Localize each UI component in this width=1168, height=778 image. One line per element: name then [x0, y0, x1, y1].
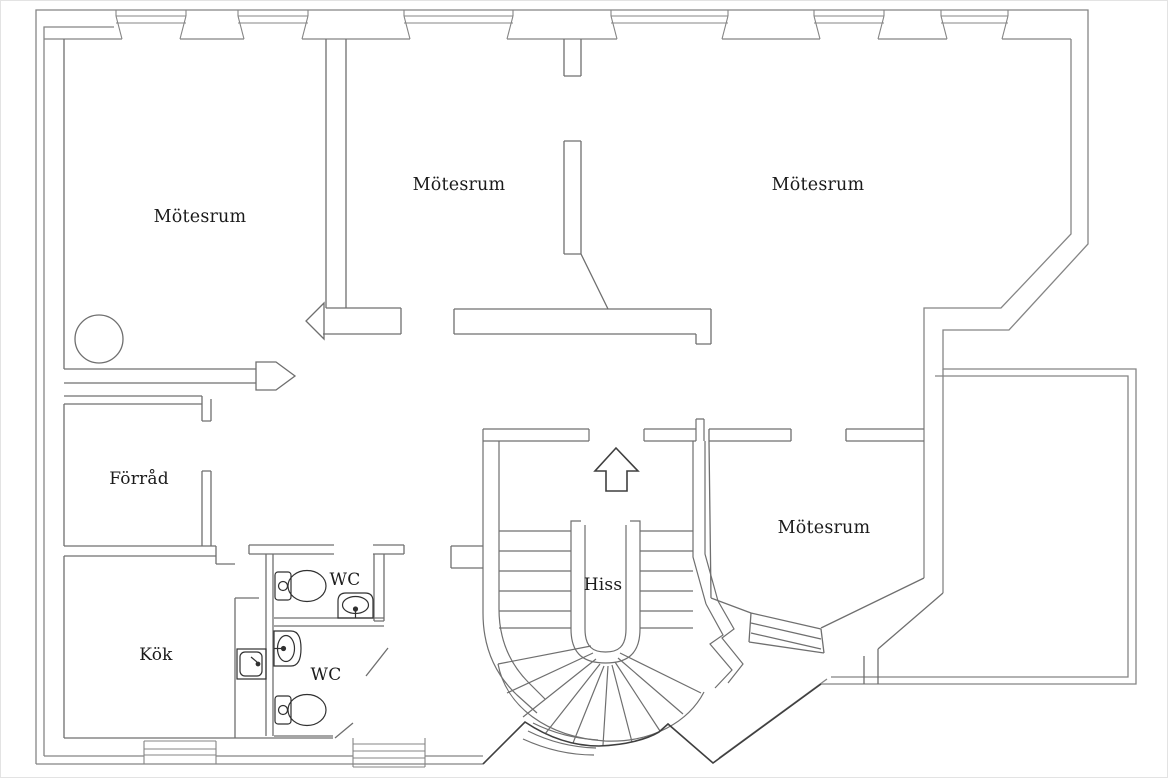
opening-arrow-right-icon — [256, 362, 295, 390]
room-label-wc-lower: WC — [311, 665, 342, 685]
window-icon — [814, 10, 884, 39]
entry-steps-icon — [353, 738, 425, 767]
room-labels: Mötesrum Mötesrum Mötesrum Mötesrum Förr… — [109, 175, 870, 685]
winder-outer-arc — [498, 664, 704, 741]
window-icon — [941, 10, 1008, 39]
winder-treads — [498, 646, 701, 745]
stair-treads-left — [499, 531, 571, 628]
elevator-shaft-bottom-inner — [585, 629, 626, 652]
landing-top-wall — [483, 419, 704, 441]
stair-left-wall-inner — [499, 441, 545, 699]
inner-face-right-chamfer — [924, 39, 1071, 578]
stair-right-wall — [693, 441, 718, 604]
washbasin-icon — [274, 631, 301, 666]
room-label-wc-upper: WC — [330, 570, 361, 590]
room-label-meeting-top-right: Mötesrum — [772, 175, 865, 195]
stair-treads-right — [640, 531, 693, 628]
room-label-storage: Förråd — [109, 469, 169, 489]
inner-face-left — [44, 27, 114, 756]
inner-face-bottom-right-bay — [831, 376, 1128, 677]
floor-plan-canvas: Mötesrum Mötesrum Mötesrum Mötesrum Förr… — [1, 1, 1168, 778]
window-icon — [238, 10, 308, 39]
washbasin-icon — [338, 593, 373, 618]
room-label-meeting-top-left: Mötesrum — [154, 207, 247, 227]
room-tm-left-wall — [323, 39, 401, 334]
floor-plan: Mötesrum Mötesrum Mötesrum Mötesrum Förr… — [0, 0, 1168, 778]
window-icon — [144, 741, 216, 764]
toilet-icon — [275, 571, 326, 602]
kitchen-counter — [235, 598, 259, 738]
outer-walls — [36, 10, 1136, 764]
entrance-arrow — [595, 448, 638, 491]
fixtures — [237, 571, 373, 726]
room-label-kitchen: Kök — [139, 645, 173, 665]
round-column-icon — [75, 315, 123, 363]
room-label-elevator: Hiss — [584, 575, 623, 595]
door-leaf-icon — [335, 648, 388, 738]
window-icon — [611, 10, 728, 39]
wc-left-wall — [266, 554, 273, 736]
room-right-left-wall — [709, 441, 751, 613]
room-label-meeting-right: Mötesrum — [778, 518, 871, 538]
windows-top — [116, 10, 1008, 767]
room-label-meeting-top-middle: Mötesrum — [413, 175, 506, 195]
wc-upper-walls — [249, 545, 404, 621]
room-right-top-wall — [709, 429, 924, 441]
opening-arrow-left-icon — [306, 303, 324, 339]
up-arrow-icon — [595, 448, 638, 491]
room-right-chamfer — [821, 578, 943, 684]
window-icon — [404, 10, 513, 39]
interior-walls — [64, 39, 943, 738]
rooms-2-3-bottom-wall — [454, 309, 711, 344]
window-icon — [116, 10, 186, 39]
outer-boundary — [36, 10, 1136, 764]
interior-steps-icon — [749, 613, 824, 653]
room-divider-2-3 — [564, 39, 608, 309]
toilet-icon — [275, 695, 326, 726]
kitchen-sink-icon — [237, 649, 266, 679]
corridor-stub-wall — [451, 546, 483, 568]
zigzag-wall — [706, 601, 743, 688]
kitchen-walls — [64, 556, 333, 738]
